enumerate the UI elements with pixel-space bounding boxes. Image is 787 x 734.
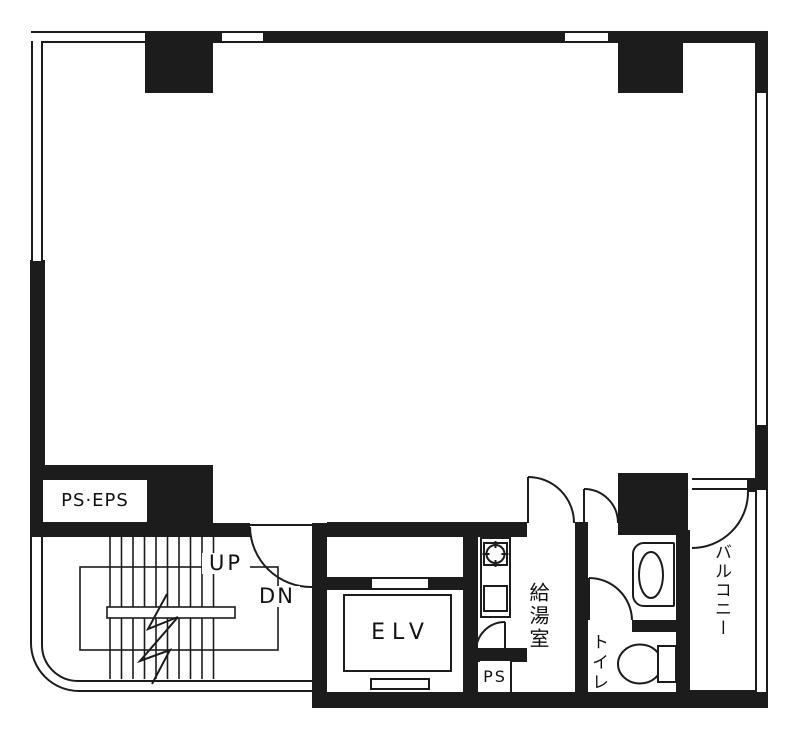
wall-toilet-top xyxy=(632,620,678,632)
kitchenette-door xyxy=(528,477,574,523)
elevator-sill xyxy=(370,678,430,690)
stove-box xyxy=(483,542,508,566)
vanity-counter xyxy=(632,542,675,607)
window-top-gap-2 xyxy=(565,31,608,43)
toilet-label: トイレ xyxy=(589,633,606,695)
wall-elv-right xyxy=(463,522,478,693)
wall-bottom xyxy=(312,692,768,708)
elevator-car: ELV xyxy=(343,594,452,672)
kitchenette-label: 給湯室 xyxy=(528,582,548,654)
floor-plan: PS·EPS ELV PS xyxy=(0,0,787,734)
lobby-door xyxy=(584,489,618,523)
elevator-label: ELV xyxy=(364,622,431,644)
wall-stair-top xyxy=(213,523,250,537)
balcony-glass-door xyxy=(692,478,747,490)
ps-eps-label: PS·EPS xyxy=(61,492,129,510)
wall-balcony-left xyxy=(676,530,690,693)
main-room xyxy=(45,43,755,463)
wall-bottom-mid xyxy=(327,522,527,537)
wall-kitchen-divider xyxy=(575,522,588,693)
window-right xyxy=(755,93,768,425)
wall-kitchen-band xyxy=(478,648,527,662)
dn-label: DN xyxy=(254,586,300,607)
wall-stair-right xyxy=(312,523,327,708)
column-balcony xyxy=(618,473,688,535)
window-left xyxy=(31,41,43,261)
column-top-right xyxy=(618,31,683,93)
pipe-space-label: PS xyxy=(483,669,507,685)
elevator-door-gap xyxy=(370,577,430,590)
balcony-rail-right xyxy=(755,490,768,692)
column-top-left xyxy=(145,31,213,93)
ps-eps-shaft: PS·EPS xyxy=(43,480,147,522)
balcony-label: バルコニー xyxy=(712,543,729,643)
pipe-space-box: PS xyxy=(480,661,512,692)
window-top-gap-1 xyxy=(222,31,263,43)
sink-box xyxy=(483,585,508,612)
wall-right-top xyxy=(755,31,768,93)
balcony-bottom-line xyxy=(690,690,756,692)
stair-hall xyxy=(45,537,312,680)
up-label: UP xyxy=(202,553,250,574)
window-top-left xyxy=(31,31,145,43)
